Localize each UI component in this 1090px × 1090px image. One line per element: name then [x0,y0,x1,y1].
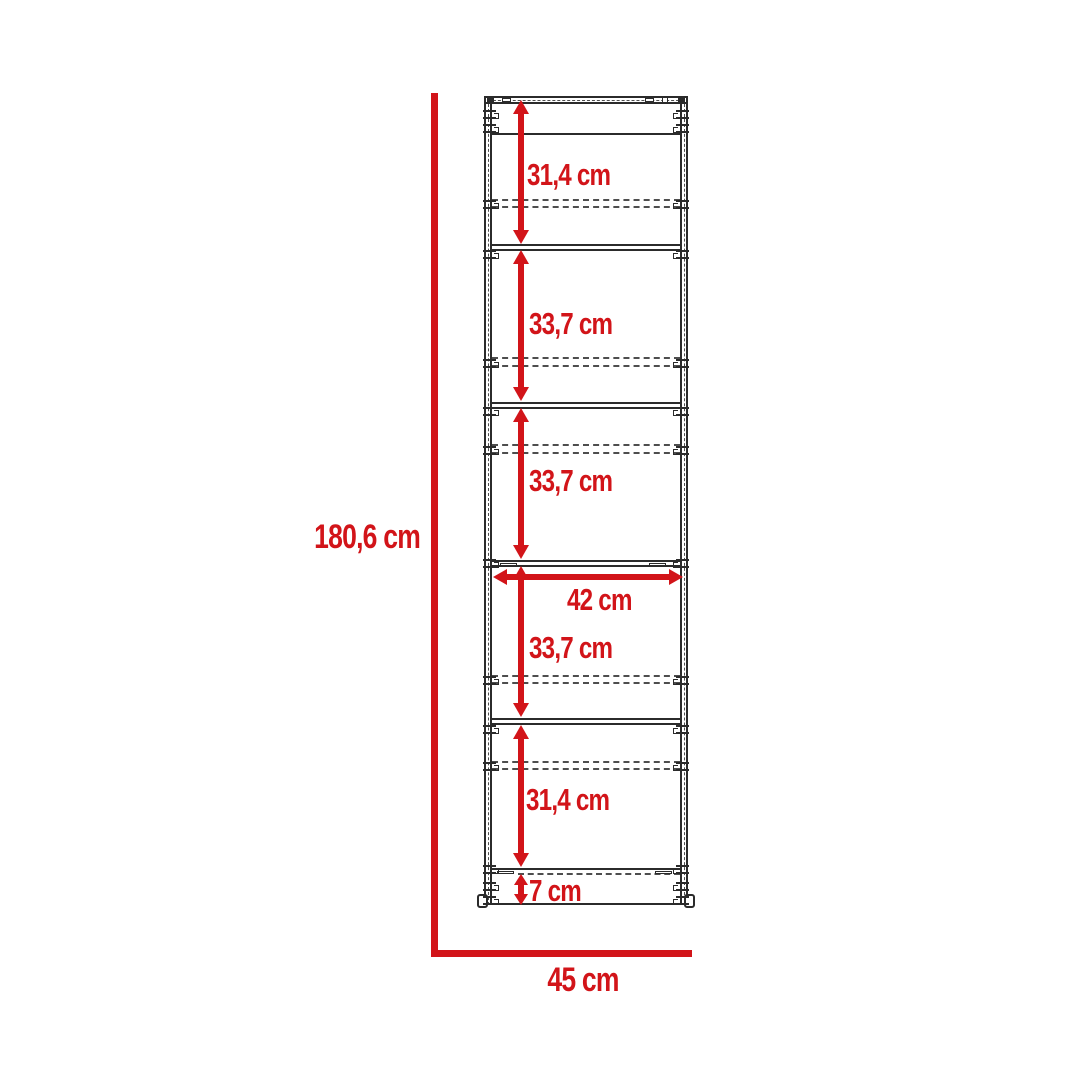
cam-lock-icon [676,559,689,568]
cam-lock-icon [483,250,496,259]
section-1-label: 31,4 cm [527,159,610,190]
section-4-label: 33,7 cm [529,632,612,663]
cam-lock-icon [676,110,689,119]
cam-lock-mark [497,871,514,874]
cam-lock-icon [483,725,496,734]
cam-lock-icon [676,725,689,734]
panel-center-dashed-line [684,104,685,905]
cam-lock-icon [676,359,689,368]
cam-lock-icon [483,865,496,874]
dimension-arrow-section-3 [513,408,529,559]
cam-lock-icon [676,676,689,685]
cam-lock-icon [483,110,496,119]
cam-lock-icon [483,407,496,416]
cam-lock-icon [676,407,689,416]
cam-lock-icon [483,200,496,209]
cam-lock-icon [483,882,496,891]
cam-lock-icon [676,865,689,874]
dimension-arrow-section-4 [513,566,529,717]
cam-lock-icon [676,882,689,891]
furniture-dimension-diagram: 180,6 cm 45 cm [0,0,1090,1090]
base-height-label: 7 cm [529,875,581,906]
arrow-head-down-icon [513,230,529,244]
cam-lock-icon [676,896,689,905]
cam-lock-icon [483,124,496,133]
shelf-line-4 [492,718,680,725]
cam-lock-icon [483,359,496,368]
top-panel-fitting-mark [662,97,668,103]
arrow-head-down-icon [513,853,529,867]
shelf-width-label: 42 cm [567,584,632,615]
overall-width-dimension-line [431,950,692,957]
cam-lock-icon [483,762,496,771]
cam-lock-icon [483,896,496,905]
cam-lock-mark [649,563,666,566]
cam-lock-mark [655,871,672,874]
cam-lock-icon [676,762,689,771]
overall-width-label: 45 cm [521,963,646,997]
arrow-head-down-icon [513,545,529,559]
cam-lock-icon [483,676,496,685]
cam-lock-icon [483,559,496,568]
overall-height-label: 180,6 cm [295,520,420,554]
top-panel-fitting-mark [645,98,654,102]
cabinet-side-panel-left [484,96,492,905]
cam-lock-icon [676,124,689,133]
arrow-head-down-icon [513,703,529,717]
arrow-head-right-icon [669,569,683,585]
cabinet-side-panel-right [680,96,688,905]
section-5-label: 31,4 cm [526,784,609,815]
arrow-head-down-icon [513,387,529,401]
cam-lock-icon [676,250,689,259]
corner-bracket-top-left [487,97,494,103]
arrow-head-down-icon [514,894,528,905]
dimension-arrow-section-2 [513,250,529,401]
cam-lock-icon [483,446,496,455]
top-panel-fitting-mark [502,98,511,102]
overall-height-dimension-line [431,93,438,957]
corner-bracket-top-right [678,97,685,103]
section-3-label: 33,7 cm [529,465,612,496]
cam-lock-icon [676,200,689,209]
panel-center-dashed-line [488,104,489,905]
section-2-label: 33,7 cm [529,308,612,339]
cam-lock-icon [676,446,689,455]
dimension-arrow-base [513,874,529,905]
